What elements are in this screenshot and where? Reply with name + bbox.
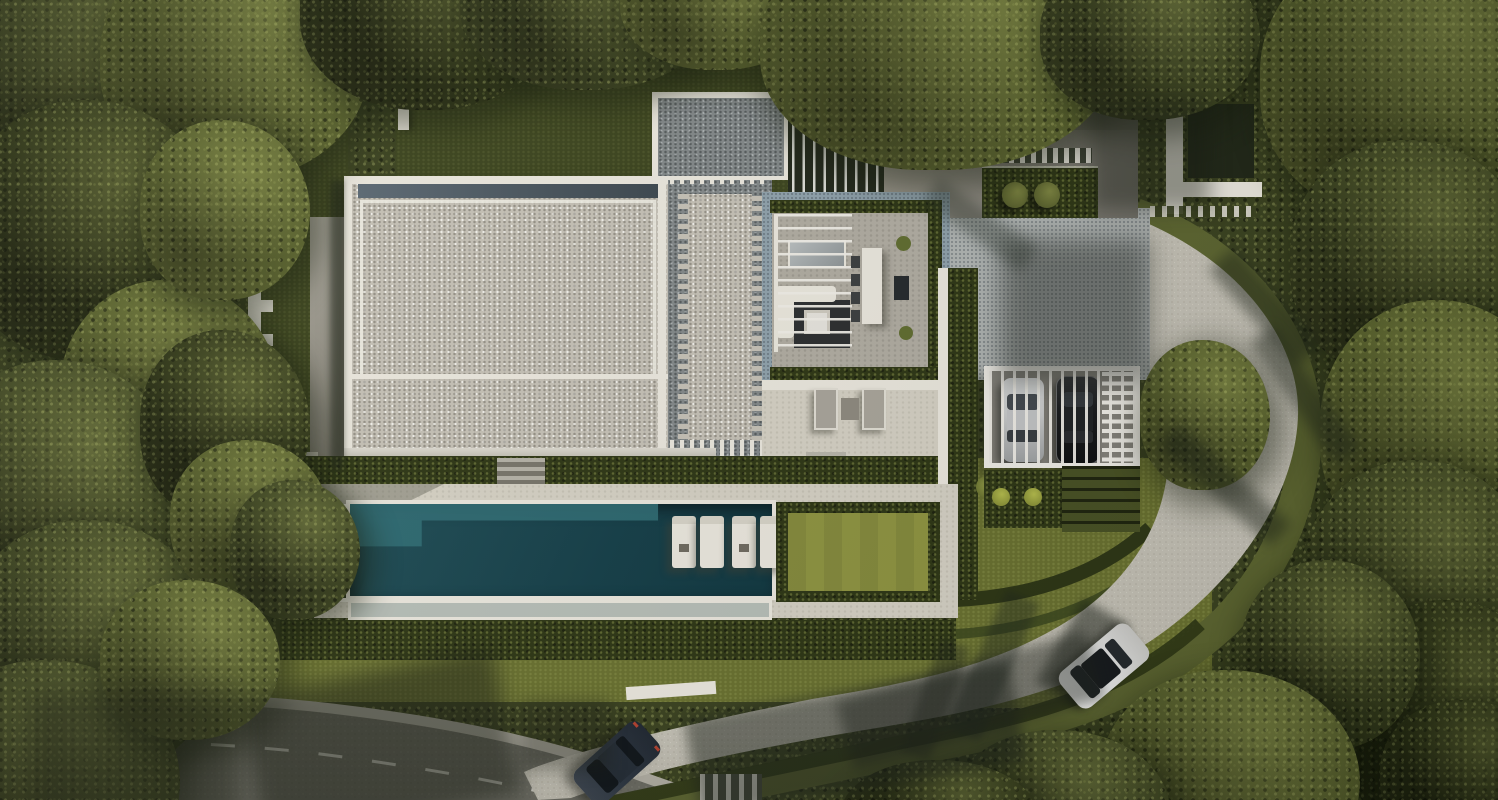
outdoor-long-table xyxy=(862,248,882,324)
garden-tree-1 xyxy=(1002,182,1028,208)
lounge-sofa-left xyxy=(814,388,838,430)
louver-gravel-core xyxy=(688,194,752,440)
pergola-slats xyxy=(774,214,852,352)
table-chair-1 xyxy=(851,256,860,268)
lounge-table xyxy=(841,398,859,420)
sun-lounger-1 xyxy=(672,516,696,568)
kitchen-island xyxy=(894,276,909,300)
carport-comb xyxy=(1102,372,1136,462)
roof-inner-frame xyxy=(360,200,656,378)
sun-lounger-2 xyxy=(700,516,724,568)
courtyard-plant-2 xyxy=(899,326,913,340)
bright-shrub-2 xyxy=(1024,488,1042,506)
upper-roof-gravel xyxy=(658,98,784,176)
sun-lounger-3 xyxy=(732,516,756,568)
lounger-towel-1 xyxy=(679,544,689,552)
bright-shrub-1 xyxy=(992,488,1010,506)
lawn-panel xyxy=(788,513,928,591)
louver-sawtooth-left xyxy=(678,194,688,440)
hedge-path-horizontal xyxy=(1166,182,1262,197)
courtyard-plant-1 xyxy=(896,236,911,251)
pool-overflow-shelf xyxy=(348,600,772,620)
tree-canopy xyxy=(140,120,310,300)
table-chair-4 xyxy=(851,310,860,322)
lounger-towel-2 xyxy=(739,544,749,552)
table-chair-3 xyxy=(851,292,860,304)
roof-skylight xyxy=(358,184,664,198)
navy-car-taillight-right xyxy=(633,721,639,727)
louver-sawtooth-right xyxy=(752,196,762,442)
hedge-rows-plot xyxy=(1062,466,1140,532)
entrance-rail-slats xyxy=(700,774,762,800)
tree-canopy xyxy=(100,580,280,740)
hedge-garden-square xyxy=(1188,104,1254,178)
terrace-step-wall xyxy=(762,380,950,390)
table-chair-2 xyxy=(851,274,860,286)
aerial-scene xyxy=(0,0,1498,800)
navy-car-taillight-left xyxy=(654,745,660,751)
courtyard-hedge-bottom xyxy=(770,367,942,380)
roof-divider xyxy=(658,180,666,450)
garden-tree-2 xyxy=(1034,182,1060,208)
tree-canopy xyxy=(1140,340,1270,490)
lounge-sofa-right xyxy=(862,388,886,430)
hedge-wall-dotted xyxy=(1150,206,1256,217)
tree-canopy xyxy=(230,480,360,620)
courtyard-hedge-top xyxy=(770,200,942,213)
